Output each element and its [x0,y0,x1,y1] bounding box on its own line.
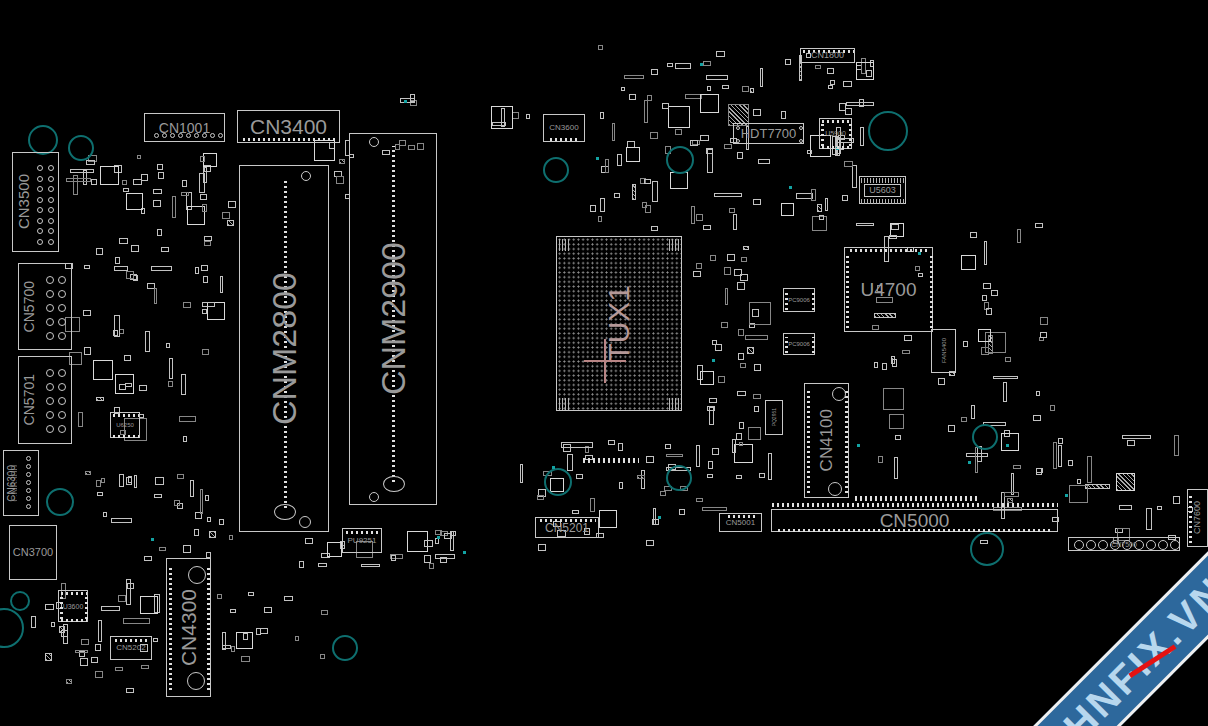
smd-part [305,538,313,543]
smd-part [652,181,658,203]
smd-part [1146,508,1152,529]
pin-circle [46,290,54,298]
component-CN5201[interactable]: CN5201 [535,517,599,538]
smd-part [81,639,89,645]
smd-part [843,81,852,86]
smd-part [86,160,95,165]
via-dot [151,538,154,541]
component-FAN5400[interactable]: FAN5400 [931,329,956,373]
smd-part [668,106,690,128]
smd-part [614,193,619,198]
smd-part [1035,223,1042,229]
smd-part [984,241,987,266]
smd-part [318,563,326,567]
smd-part [895,435,902,440]
component-CN4100[interactable]: CN4100 [804,383,849,498]
pin-row [61,619,87,622]
pin-circle [299,516,311,528]
smd-part [737,391,745,396]
mounting-hole [972,424,998,450]
smd-part [209,531,217,539]
smd-part [91,179,97,185]
pin-circle [58,318,66,326]
component-CN3400[interactable]: CN3400 [237,110,340,143]
smd-part [45,653,51,661]
smd-part [734,444,752,462]
smd-part [1004,492,1019,498]
smd-part [78,412,83,427]
smd-part [892,359,897,366]
smd-part [670,172,687,189]
smd-part [819,215,824,220]
pin-circle [48,197,54,203]
smd-part [707,86,712,91]
component-label: CN1001 [159,121,210,135]
mounting-hole [28,125,58,155]
smd-part [675,63,691,69]
smd-part [598,216,602,222]
smd-part [435,538,439,544]
smd-part [618,443,623,450]
smd-part [123,618,149,624]
smd-part [904,335,911,341]
component-label: PC9006 [788,297,810,303]
smd-part [169,358,173,378]
smd-part [982,295,987,301]
smd-part [1053,442,1058,469]
smd-part [706,148,713,154]
smd-part [203,167,207,184]
component-PU9251[interactable]: PU9251 [342,528,382,553]
smd-part [144,556,152,561]
pin-circle [58,369,66,377]
smd-part [700,371,714,385]
pin-column [85,595,88,619]
pin-circle [58,276,66,284]
smd-part [902,350,910,354]
smd-part [781,203,794,216]
castellation [559,398,571,410]
smd-part [646,540,654,546]
smd-part [600,198,605,213]
smd-part [651,226,658,231]
pin-circle [58,397,66,405]
via-dot [596,157,599,160]
smd-part [161,247,170,252]
smd-part [874,362,878,368]
pin-row [855,496,977,501]
smd-part [844,161,853,167]
smd-part [817,204,822,212]
smd-part [202,302,214,307]
smd-part [828,85,833,89]
component-PQ2951[interactable]: PQ2951 [765,400,783,435]
smd-part [260,628,267,634]
via-dot [1006,444,1009,447]
component-CN1800[interactable]: CN1800 [800,48,855,63]
smd-part [807,150,813,154]
smd-part [626,147,640,161]
smd-part [429,563,435,569]
pin-row [113,414,139,417]
component-CN3500[interactable]: CN3500 [12,152,59,252]
smd-part [785,59,791,65]
pin-circle [369,137,379,147]
smd-part [815,65,822,69]
smd-part [103,512,107,517]
component-label: CN5201 [545,522,589,534]
smd-part [123,188,130,192]
smd-part [159,547,166,551]
smd-part [1087,456,1092,483]
pin-row [550,138,580,141]
pin-circle [37,165,43,171]
mounting-hole [666,465,692,491]
smd-part [219,519,223,525]
smd-part [1085,484,1111,490]
smd-part [621,87,625,92]
smd-part [693,271,701,277]
pin-circle [37,197,43,203]
pin-circle [48,228,54,234]
smd-part [754,406,759,412]
smd-part [314,140,335,161]
smd-part [158,172,164,180]
smd-part [95,644,101,651]
smd-part [231,646,235,652]
smd-part [114,315,120,336]
smd-part [696,445,700,468]
smd-part [599,510,618,529]
smd-part [753,394,761,399]
smd-part [739,442,743,446]
smd-part [714,193,742,198]
smd-part [675,129,682,136]
mounting-hole [970,532,1004,566]
via-dot [1065,494,1068,497]
mounting-hole [0,608,24,648]
pin-circle [58,290,66,298]
smd-part [174,500,179,507]
component-CN3700[interactable]: CN3700 [9,525,57,580]
smd-part [202,349,209,355]
smd-part [424,540,432,547]
pin-column [845,390,848,493]
smd-part [883,388,905,410]
smd-part [217,594,222,598]
component-label: PQ2951 [772,408,777,426]
smd-part [222,212,231,219]
pin-row [243,138,336,141]
smd-part [743,246,749,250]
smd-part [632,184,636,200]
component-CN3600[interactable]: CN3600 [543,114,585,142]
pin-circle [58,425,66,433]
smd-part [207,517,211,521]
smd-part [1040,317,1048,324]
component-U5603[interactable]: U5603 [859,176,906,204]
component-label: CNM2800 [267,272,301,425]
component-label: CN3600 [549,124,578,132]
smd-part [115,257,120,265]
smd-part [760,68,763,87]
smd-part [961,417,967,423]
smd-part [752,309,758,316]
smd-part [179,416,196,422]
smd-part [572,510,579,514]
component-U5900[interactable]: U5900 [819,118,852,149]
smd-part [842,195,849,201]
smd-part [721,322,728,328]
pin-circle [736,139,740,143]
smd-part [201,265,208,271]
smd-part [650,132,658,139]
smd-part [141,174,148,180]
smd-part [727,254,736,261]
smd-part [1013,465,1021,469]
smd-part [696,498,702,502]
component-label: CN7500 [1111,541,1137,548]
smd-part [666,454,683,458]
smd-part [860,127,864,146]
smd-part [641,470,646,489]
smd-part [742,86,749,92]
component-CN5700[interactable]: CN5700 [18,263,72,350]
smd-part [157,164,162,170]
smd-part [729,208,735,213]
pin-circle [46,318,54,326]
pin-circle [48,186,54,192]
smd-part [667,63,673,67]
smd-part [741,257,747,261]
smd-part [128,476,132,483]
smd-part [391,555,396,561]
pin-circle [736,126,740,130]
pin-circle [26,488,31,493]
pin-circle [46,332,54,340]
smd-part [168,381,173,388]
smd-part [157,229,162,236]
smd-part [747,347,753,354]
pin-circle [1074,540,1084,550]
smd-part [986,308,992,316]
via-dot [658,516,661,519]
pin-row [346,531,380,534]
pin-circle [1158,540,1168,550]
component-CN5202[interactable]: CN5202 [110,636,152,660]
smd-part [195,267,199,275]
smd-part [183,302,191,308]
smd-part [745,335,768,339]
smd-part [190,480,193,497]
smd-part [84,265,89,269]
pin-row [772,503,1058,507]
component-label: U5603 [864,184,901,197]
smd-part [203,276,208,283]
pin-circle [26,464,31,469]
smd-part [227,220,234,226]
via-dot [712,359,715,362]
smd-part [248,592,254,596]
component-label: PC9006 [788,341,810,347]
mounting-hole [666,146,694,174]
pin-circle [48,218,54,224]
component-PC9006[interactable]: PC9006 [783,333,815,355]
pin-circle [210,133,215,138]
smd-part [83,310,92,315]
pin-circle [188,566,206,584]
smd-part [781,111,786,119]
component-HDT7700[interactable]: HDT7700 [733,123,804,144]
smd-part [59,626,65,632]
smd-part [637,475,646,479]
smd-part [724,144,732,149]
pin-circle [301,171,311,181]
smd-part [759,473,765,478]
component-label: U3600 [63,603,84,610]
smd-part [145,331,150,352]
smd-part [707,474,714,479]
smd-part [230,609,236,613]
smd-part [758,159,771,165]
smd-part [624,75,645,79]
smd-part [561,442,593,448]
boardview-canvas[interactable]: CN3500CN1001CN3400CNM2800CNM2900CN5700CN… [0,0,1208,726]
smd-part [702,507,727,511]
smd-part [153,189,162,194]
component-U3600[interactable]: U3600 [58,590,88,622]
smd-part [133,179,142,185]
smd-part [750,88,754,93]
smd-part [991,290,998,296]
smd-part [619,482,623,489]
smd-part [706,75,728,80]
mounting-hole [543,157,569,183]
via-dot [789,186,792,189]
smd-part [100,166,119,185]
component-label: CN5202 [116,644,145,652]
smd-part [66,679,73,684]
smd-part [736,433,743,440]
component-CN5701[interactable]: CN5701 [18,356,72,444]
smd-part [154,494,163,499]
component-CNM2800[interactable]: CNM2800 [239,165,329,532]
component-CN7500[interactable]: CN7500 [1068,537,1180,551]
smd-part [1116,473,1135,492]
component-CN5001[interactable]: CN5001 [719,513,762,532]
smd-part [768,453,773,480]
smd-part [98,620,103,642]
pin-row [822,120,850,123]
pin-circle [1086,540,1096,550]
smd-part [154,288,157,304]
pin-circle [37,239,43,245]
smd-part [830,80,835,86]
smd-part [203,153,217,167]
smd-part [993,376,1018,379]
smd-part [264,607,271,613]
component-label: CN5700 [22,281,36,332]
smd-part [126,193,143,210]
component-CNM2900[interactable]: CNM2900 [349,133,437,505]
pin-circle [799,126,803,130]
pin-circle [26,504,31,509]
component-PC9006[interactable]: PC9006 [783,288,815,312]
smd-part [866,70,872,77]
component-CN1001[interactable]: CN1001 [144,113,225,142]
pin-circle [58,411,66,419]
smd-part [200,194,207,200]
smd-part [101,606,120,610]
smd-part [856,223,874,226]
smd-part [644,100,649,123]
smd-part [733,214,737,230]
component-label: CN4100 [818,409,835,471]
smd-part [754,364,761,371]
pin-circle [46,304,54,312]
smd-part [131,245,139,252]
pin-circle [799,139,803,143]
component-U6250[interactable]: U6250 [110,412,140,438]
mounting-hole [46,488,74,516]
smd-part [339,159,345,164]
component-label: CN3500 [16,174,31,229]
pin-circle [37,228,43,234]
mounting-hole [332,635,358,661]
smd-part [617,154,622,167]
smd-part [646,456,654,463]
smd-part [202,309,207,315]
component-TUX1[interactable]: TUX1 [556,236,682,411]
smd-part [1050,405,1055,412]
smd-part [644,179,651,184]
component-label: CN5001 [726,519,755,527]
smd-part [321,610,328,615]
pin-row [850,249,929,252]
component-CN6300[interactable]: CN6300 [3,450,39,516]
pin-row [61,592,87,595]
component-label: FAN5400 [941,338,947,363]
smd-part [889,414,904,429]
smd-part [1017,229,1021,243]
pin-column [807,390,810,493]
smd-part [1068,460,1074,466]
smd-part [737,282,745,289]
smd-part [652,519,659,525]
smd-part [205,495,210,502]
pin-circle [48,207,54,213]
smd-part [1122,435,1150,439]
smd-part [1174,435,1179,456]
pin-row [822,146,850,149]
component-CN5000[interactable]: CN5000 [771,509,1058,532]
via-dot [552,466,555,469]
smd-part [576,474,583,479]
smd-part [124,355,131,361]
smd-part [140,596,158,614]
smd-part [983,283,991,289]
smd-part [31,616,36,628]
pin-circle [58,332,66,340]
smd-part [256,628,260,635]
smd-part [166,343,170,349]
smd-part [172,196,176,218]
component-U4700[interactable]: U4700 [844,247,933,332]
component-CN4300[interactable]: CN4300 [166,558,211,697]
smd-part [229,535,234,539]
component-CN7600[interactable]: CN7600 [1187,489,1208,547]
smd-part [204,236,212,242]
